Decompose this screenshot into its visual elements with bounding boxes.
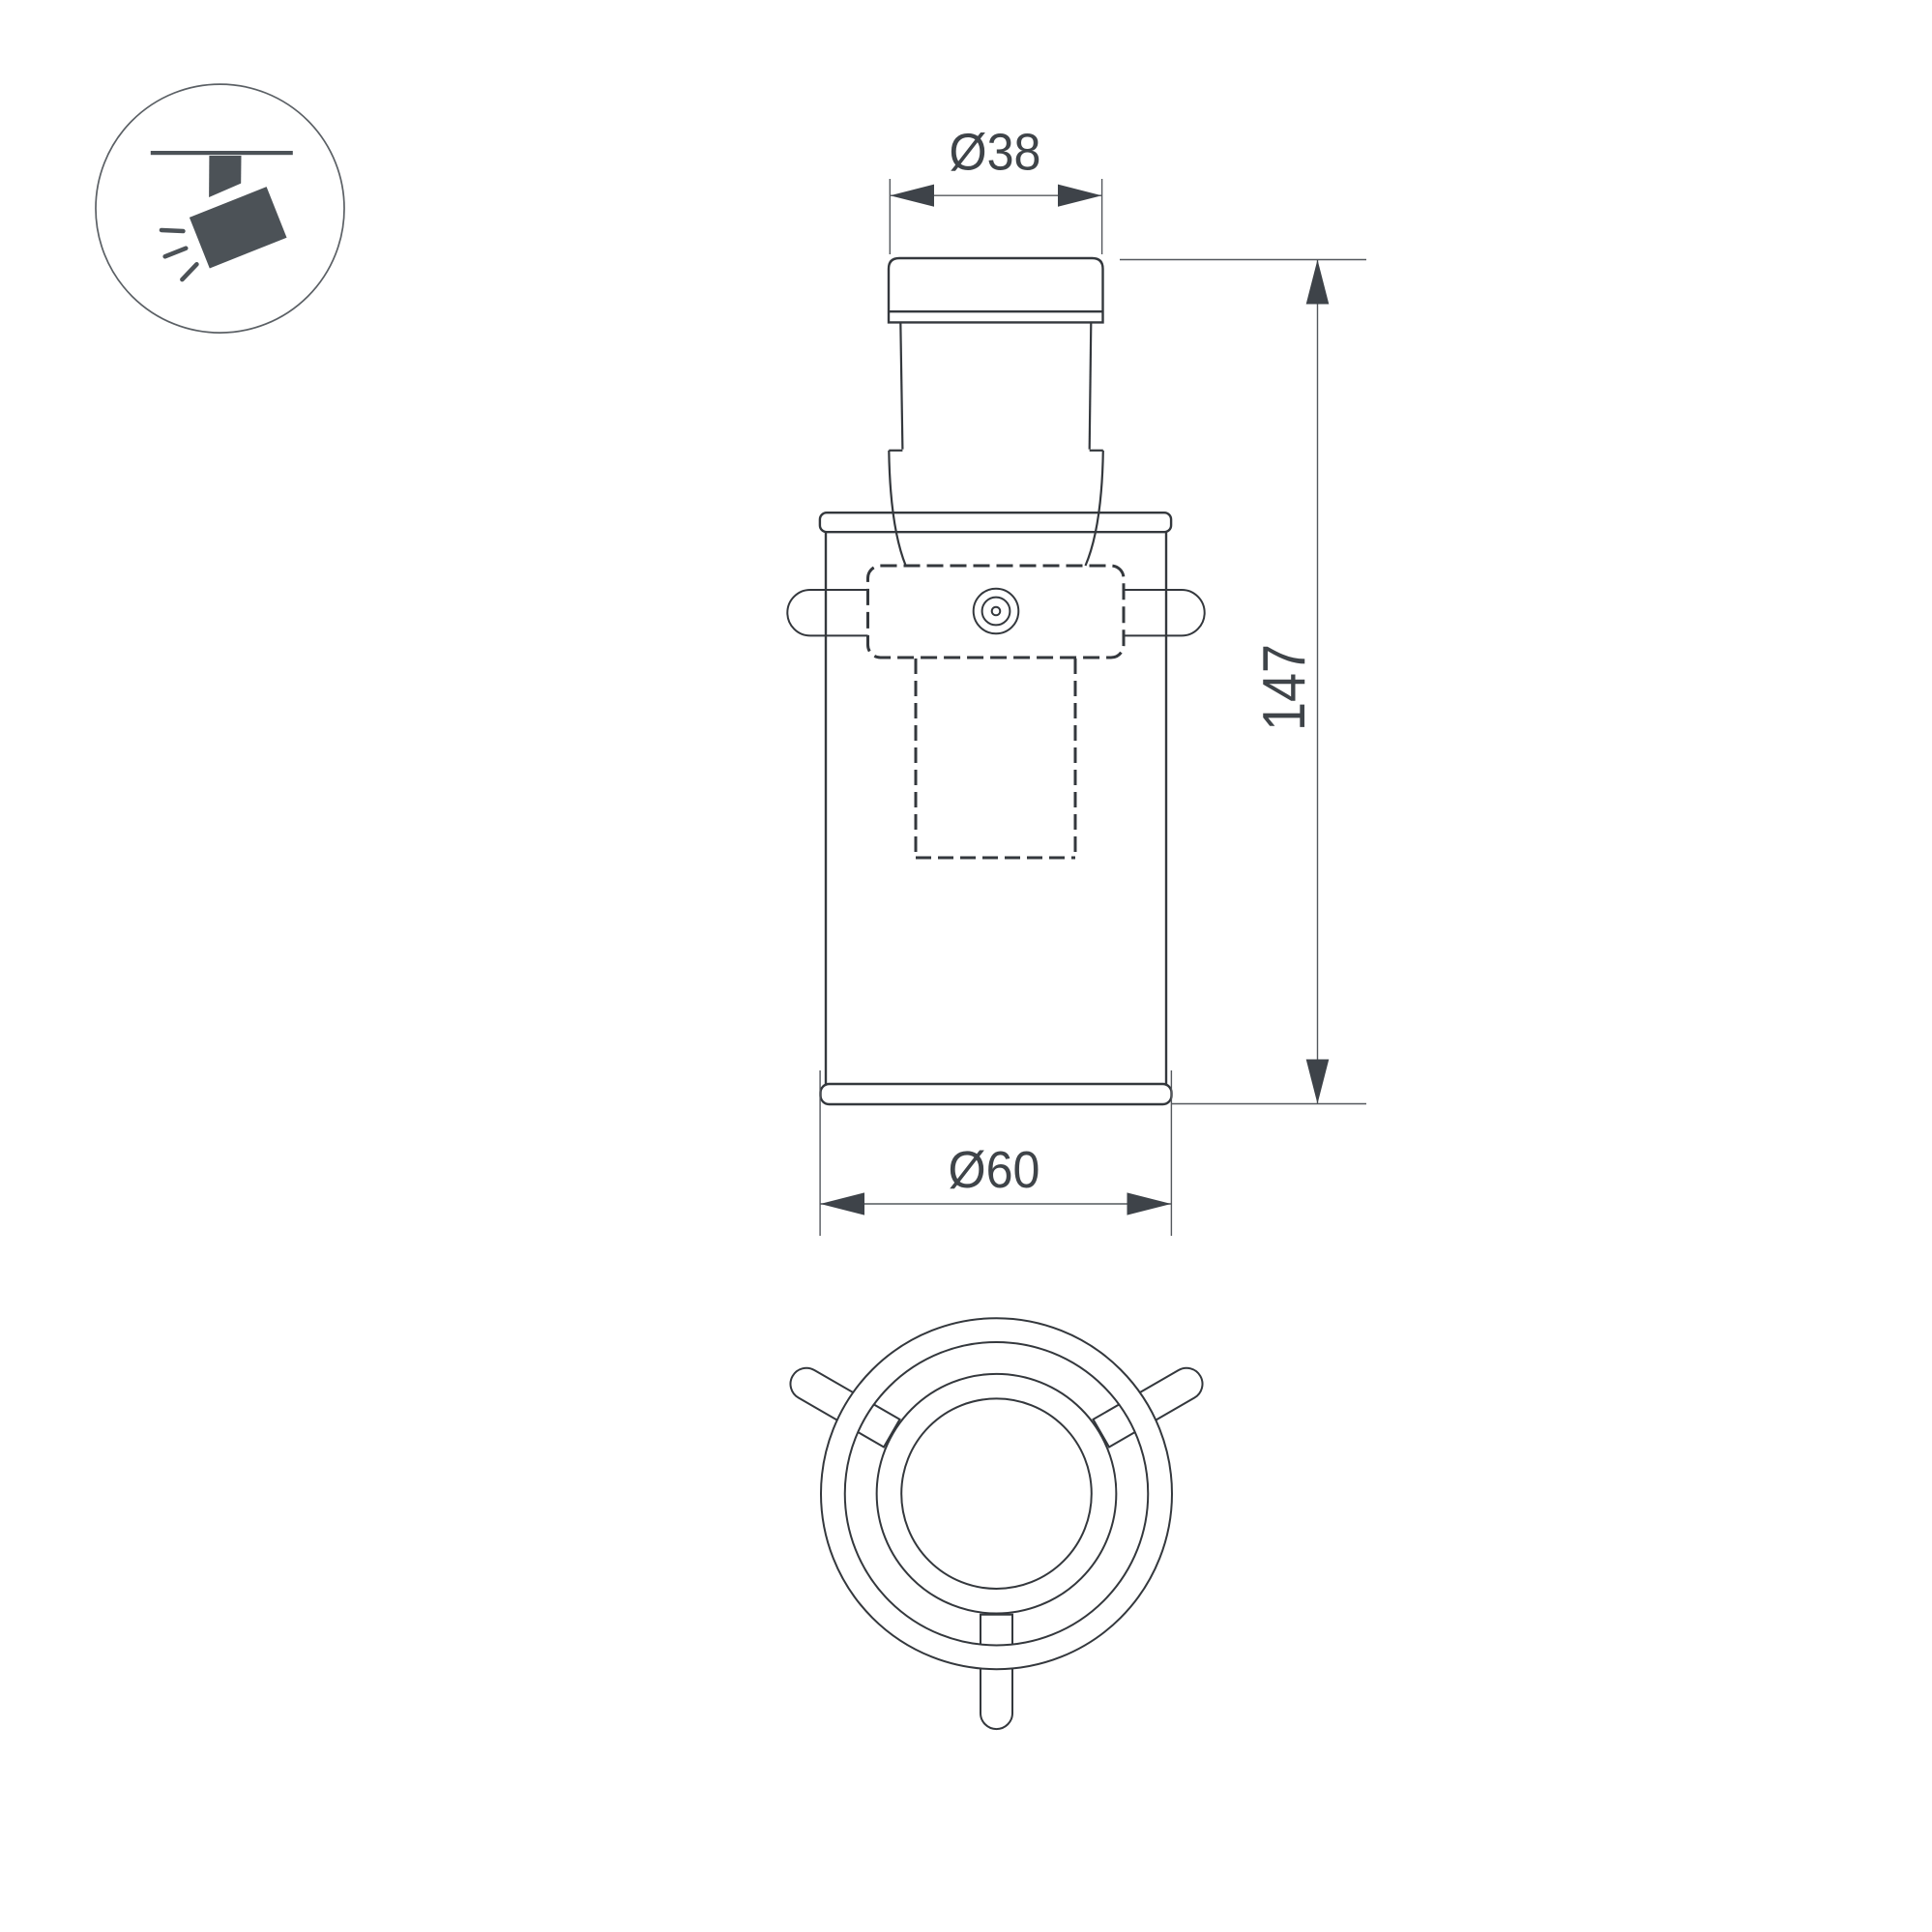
svg-text:Ø38: Ø38 (950, 124, 1041, 182)
svg-text:147: 147 (1251, 644, 1318, 731)
svg-text:Ø60: Ø60 (949, 1141, 1040, 1199)
